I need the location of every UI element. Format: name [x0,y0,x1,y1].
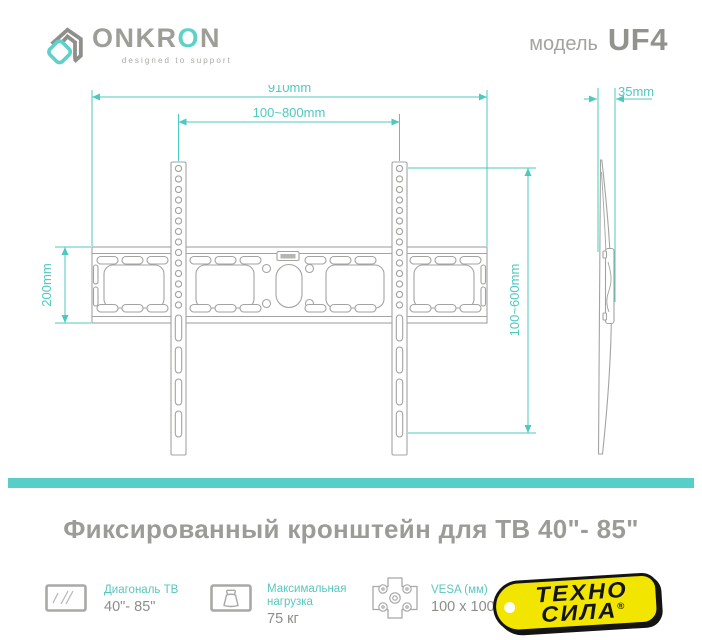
tehnosila-logo: ТЕХНО СИЛА® [492,572,661,634]
dimension-hole-pattern-height: 100~600mm [507,264,522,337]
onkron-logo-icon [45,18,85,70]
spec-label: Диагональ ТВ [104,584,200,597]
product-title: Фиксированный кронштейн для ТВ 40"- 85" [0,514,702,545]
dimension-hole-pattern-width: 100~800mm [253,105,326,120]
spec-label: Максимальная нагрузка [267,583,359,609]
technical-drawing: 910mm 100~800mm 200mm 100~600mm 35mm [0,85,702,475]
model-value: UF4 [608,22,668,58]
max-load-icon [210,584,252,612]
model-label: модель [529,33,598,56]
tv-diagonal-icon [45,584,87,612]
brand-name: ONKRON [92,24,221,52]
dimension-total-width: 910mm [268,85,311,95]
brand-tagline: designed to support [92,56,232,65]
side-view [599,160,615,454]
front-view [92,162,487,455]
model-block: модель UF4 [529,22,668,58]
vesa-icon [372,577,418,619]
spec-tv-diagonal: Диагональ ТВ 40"- 85" [104,584,200,615]
teal-divider [8,478,694,488]
spec-value: 75 кг [267,611,359,627]
registered-mark: ® [617,601,625,611]
dimension-depth: 35mm [618,85,654,99]
retailer-name: ТЕХНО СИЛА® [508,577,662,627]
spec-value: 40"- 85" [104,599,200,615]
spec-max-load: Максимальная нагрузка 75 кг [267,583,359,627]
product-sheet: ONKRON designed to support модель UF4 [0,0,702,640]
dimension-plate-height: 200mm [39,263,54,306]
